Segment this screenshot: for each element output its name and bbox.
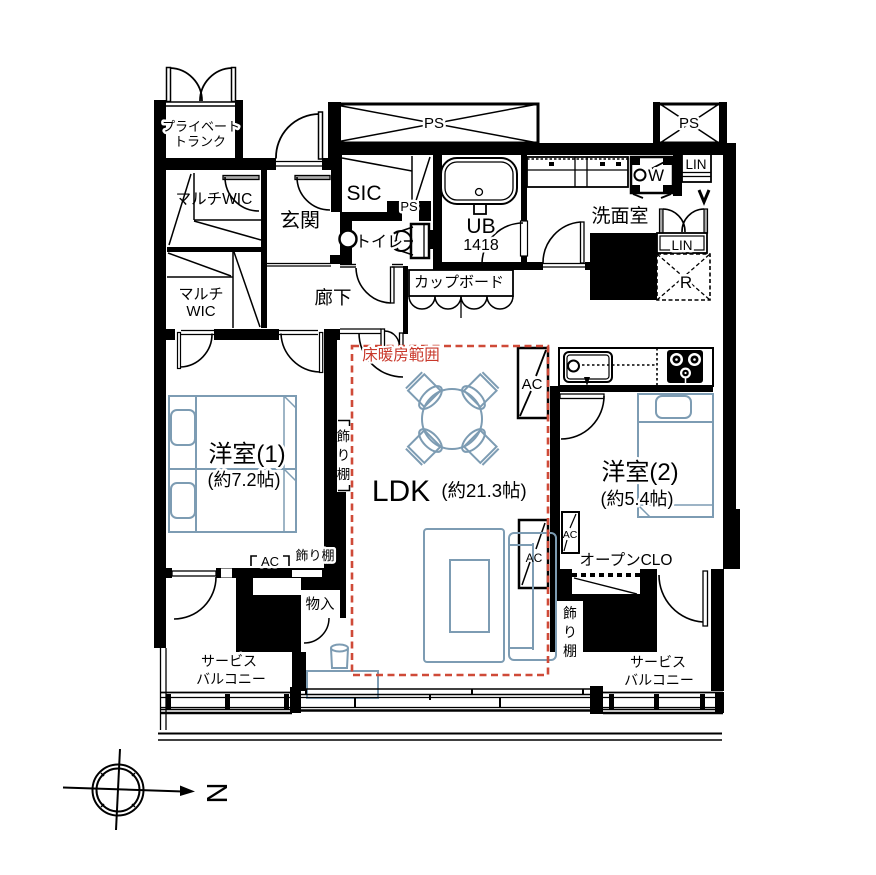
svg-text:棚: 棚	[337, 467, 351, 482]
svg-text:(約7.2帖): (約7.2帖)	[207, 470, 280, 490]
svg-text:LIN: LIN	[685, 157, 706, 172]
svg-text:飾: 飾	[563, 605, 577, 621]
svg-text:SIC: SIC	[346, 182, 381, 205]
svg-text:廊下: 廊下	[314, 287, 351, 308]
svg-text:バルコニー: バルコニー	[196, 671, 266, 687]
svg-text:(約21.3帖): (約21.3帖)	[441, 480, 526, 501]
svg-text:飾: 飾	[337, 429, 351, 444]
svg-text:り: り	[563, 624, 577, 640]
svg-text:1418: 1418	[463, 237, 499, 254]
svg-text:W: W	[648, 166, 664, 185]
svg-text:UB: UB	[466, 215, 495, 238]
svg-text:PS: PS	[679, 115, 699, 132]
svg-text:LDK: LDK	[372, 475, 430, 508]
svg-text:オープンCLO: オープンCLO	[580, 551, 673, 569]
svg-text:PS: PS	[400, 199, 418, 214]
svg-text:洋室(1): 洋室(1)	[208, 441, 285, 468]
svg-text:り: り	[337, 448, 351, 463]
svg-text:AC: AC	[563, 529, 578, 541]
svg-text:玄関: 玄関	[280, 209, 320, 232]
svg-text:トランク: トランク	[174, 134, 226, 149]
svg-text:床暖房範囲: 床暖房範囲	[362, 346, 440, 364]
svg-text:バルコニー: バルコニー	[624, 672, 694, 688]
svg-text:棚: 棚	[563, 643, 577, 659]
svg-text:(約5.4帖): (約5.4帖)	[600, 489, 673, 509]
svg-text:R: R	[680, 273, 692, 292]
svg-text:トイレ: トイレ	[355, 234, 403, 251]
svg-text:AC: AC	[261, 554, 279, 569]
svg-text:サービス: サービス	[630, 654, 686, 670]
svg-text:PS: PS	[424, 115, 444, 132]
svg-text:サービス: サービス	[201, 653, 257, 669]
svg-text:プライベート: プライベート	[162, 119, 240, 134]
svg-text:マルチ: マルチ	[178, 286, 223, 303]
svg-text:マルチWIC: マルチWIC	[176, 191, 253, 208]
svg-text:WIC: WIC	[186, 303, 215, 320]
svg-text:LIN: LIN	[671, 238, 692, 253]
svg-text:飾り棚: 飾り棚	[295, 548, 334, 563]
svg-text:洋室(2): 洋室(2)	[601, 459, 678, 486]
svg-text:物入: 物入	[306, 596, 335, 613]
svg-text:AC: AC	[526, 551, 543, 565]
svg-text:カップボード: カップボード	[414, 274, 504, 291]
svg-text:N: N	[200, 783, 232, 804]
svg-text:AC: AC	[522, 376, 543, 393]
svg-text:洗面室: 洗面室	[591, 205, 648, 227]
